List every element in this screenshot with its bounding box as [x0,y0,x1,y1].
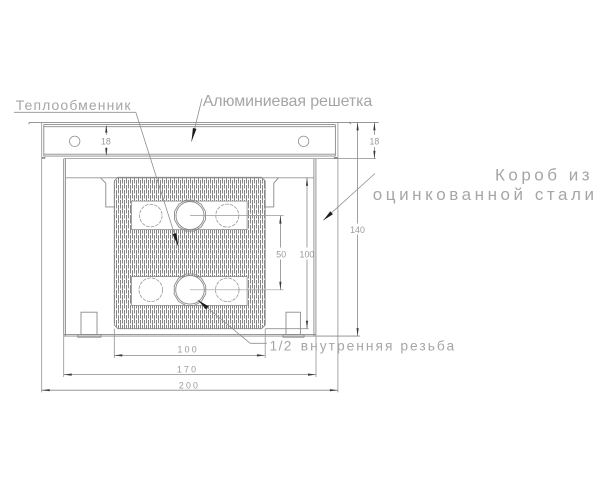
svg-text:внутренняя резьба: внутренняя резьба [301,338,456,353]
svg-text:Короб из: Короб из [495,165,593,184]
svg-text:100: 100 [300,250,315,260]
svg-text:170: 170 [177,364,198,374]
svg-text:140: 140 [350,225,365,235]
svg-text:50: 50 [276,250,286,260]
svg-text:1/2: 1/2 [270,339,293,354]
svg-text:18: 18 [101,136,111,146]
svg-text:Теплообменник: Теплообменник [16,97,132,113]
svg-text:100: 100 [178,345,199,355]
svg-text:оцинкованной стали: оцинкованной стали [373,185,598,204]
svg-text:Алюминиевая решетка: Алюминиевая решетка [203,93,373,110]
svg-text:18: 18 [370,136,380,146]
svg-text:200: 200 [179,380,200,390]
